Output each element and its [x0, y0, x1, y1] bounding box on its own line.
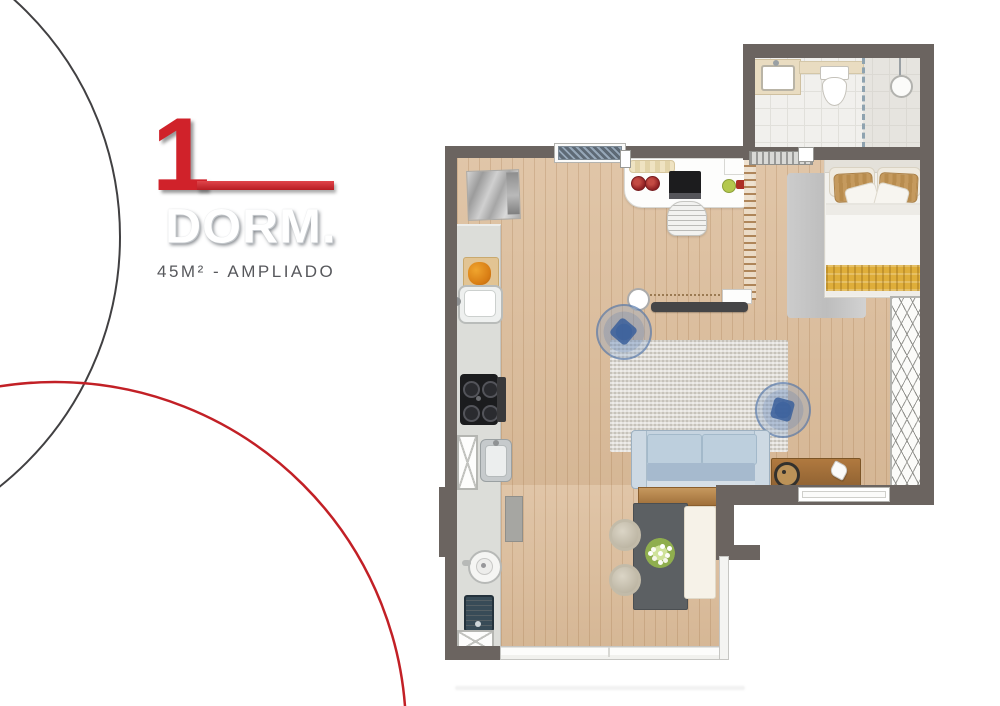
wall-left-bump [439, 487, 446, 557]
duvet [826, 203, 922, 267]
desk-chair [667, 201, 707, 236]
sofa-armrest-left [632, 431, 647, 488]
basin-handle [462, 560, 471, 566]
laundry-sink-basin [485, 445, 507, 477]
page: 1 DORM. 45M² - AMPLIADO [0, 0, 1000, 706]
red-bowl-1 [631, 176, 646, 191]
bathroom-door-jamb [798, 147, 814, 162]
wardrobe [890, 296, 924, 488]
washing-machine [464, 595, 494, 632]
flower-blooms [658, 551, 663, 556]
bed-blanket [826, 265, 922, 291]
vanity-sink [761, 65, 795, 91]
shower-head [890, 75, 913, 98]
red-bowl-2 [645, 176, 660, 191]
stool-2 [609, 564, 641, 596]
sofa-back-cushion-1 [647, 434, 702, 465]
round-basin-drain [481, 563, 486, 568]
flower-centerpiece [645, 538, 675, 568]
kitchen-partition-stub [505, 496, 523, 542]
cooktop-knob [476, 396, 481, 401]
sofa-back-cushion-2 [702, 434, 757, 465]
shower-partition [862, 58, 865, 148]
swivel-chair-1-seat [609, 317, 639, 347]
cooktop [460, 374, 498, 425]
wall-right [920, 44, 934, 505]
desk-tray [629, 160, 675, 173]
lime-fruit [722, 179, 736, 193]
silver-throw [466, 169, 521, 221]
dining-table-white-half [684, 506, 716, 599]
bottom-window-mullion [608, 647, 610, 657]
entry-door-jamb [620, 150, 631, 168]
wall-left [445, 146, 457, 660]
bedroom-window [798, 487, 890, 502]
vanity-faucet [773, 60, 779, 66]
floor-plan [0, 0, 1000, 706]
wall-bottom-left [445, 646, 501, 660]
sofa [631, 430, 770, 489]
kitchen-sink-basin [464, 290, 496, 317]
silver-throw-fold [506, 172, 519, 214]
tv-bar [651, 302, 748, 312]
bed [824, 158, 924, 298]
window-top-glass [558, 146, 622, 160]
cabinet-shaft-upper [457, 435, 478, 490]
laptop-keyboard [669, 193, 701, 199]
burner-3 [463, 405, 480, 422]
wall-bathroom-top [743, 44, 934, 58]
swivel-chair-1 [596, 304, 652, 360]
speaker-center [782, 470, 786, 474]
shower-floor [863, 57, 920, 148]
stool-1 [609, 519, 641, 551]
swivel-chair-2-seat [770, 397, 796, 423]
utensil-rail [497, 377, 506, 422]
bottom-window [500, 646, 722, 660]
food-on-board [468, 262, 491, 285]
divider-shelf [744, 160, 756, 300]
plan-shadow [455, 686, 745, 690]
right-window-frame [719, 556, 729, 660]
washing-machine-dial [475, 621, 481, 627]
laundry-faucet [493, 440, 499, 446]
wall-bathroom-left [743, 44, 755, 160]
sofa-seat [647, 463, 755, 481]
laptop [669, 171, 701, 199]
